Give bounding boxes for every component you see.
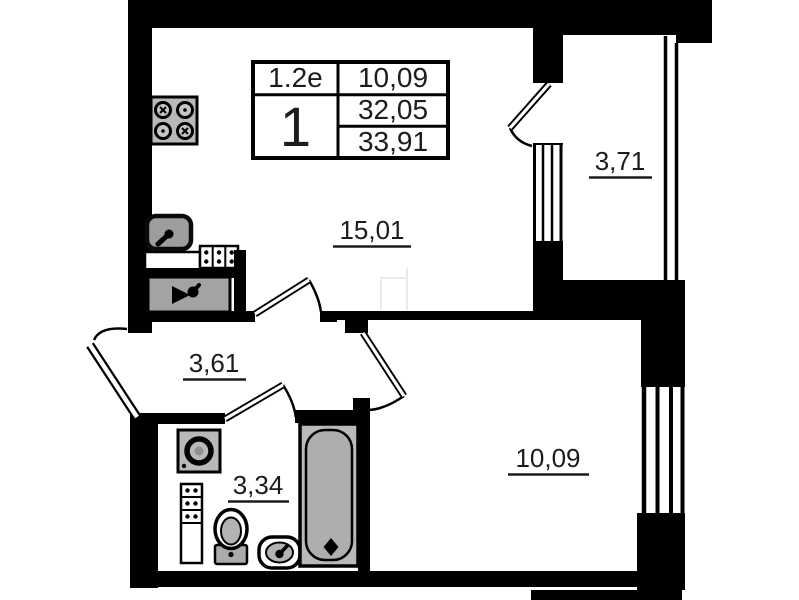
kitchen-balcony-window xyxy=(533,143,563,243)
bathroom-top-wall-step xyxy=(353,398,370,412)
washbasin-icon xyxy=(259,537,300,568)
balcony-door xyxy=(510,84,549,146)
kitchen-door xyxy=(255,280,321,314)
tap-unit-icon xyxy=(148,277,230,312)
bathroom-bedroom-wall xyxy=(358,410,370,573)
bathtub-icon xyxy=(300,424,358,566)
kitchen-sink-icon xyxy=(147,216,191,249)
stove-icon xyxy=(151,97,197,144)
wall-below-window xyxy=(533,243,563,320)
living-room-label: 15,01 xyxy=(333,215,411,247)
bedroom-area: 10,09 xyxy=(515,443,580,473)
bathroom-top-wall-right xyxy=(295,410,361,423)
balcony-door-arc xyxy=(510,128,532,146)
balcony-glazing xyxy=(666,36,677,282)
wall-top xyxy=(128,0,545,28)
entrance-door xyxy=(90,328,137,417)
floor-plan-page: 15,01 3,71 3,61 3,34 10,09 1.2e 1 10,09 … xyxy=(0,0,799,600)
bedroom-right-wall-lower xyxy=(637,513,685,590)
balcony-area: 3,71 xyxy=(595,146,646,176)
bedroom-window xyxy=(641,387,685,513)
kitchen-fixtures xyxy=(145,97,246,312)
bedroom-door-post xyxy=(345,311,368,333)
stamp-table: 1.2e 1 10,09 32,05 33,91 xyxy=(253,62,448,158)
bathroom-left-wall xyxy=(130,413,158,588)
bedroom-door-arc xyxy=(369,396,404,410)
bathroom-shelf-unit xyxy=(181,484,202,563)
hallway-label: 3,61 xyxy=(183,348,246,380)
toilet-icon xyxy=(215,510,247,565)
bathroom-door-arc xyxy=(283,385,296,418)
kitchen-door-arc xyxy=(309,280,321,312)
bathroom-label: 3,34 xyxy=(228,470,289,502)
hallway-area: 3,61 xyxy=(189,348,240,378)
wall-bottom xyxy=(130,571,641,587)
entrance-door-arc xyxy=(94,328,127,340)
floor-plan-drawing: 15,01 3,71 3,61 3,34 10,09 1.2e 1 10,09 … xyxy=(0,0,799,600)
wall-balcony-door-jamb xyxy=(533,28,563,83)
kitchen-wall-stub xyxy=(234,250,246,312)
scan-artifact xyxy=(381,268,407,310)
wall-mid-right xyxy=(320,311,643,320)
stamp-living-area: 10,09 xyxy=(358,62,428,93)
wall-balcony-corner-block xyxy=(676,0,712,43)
bedroom-right-wall-upper xyxy=(641,320,685,387)
kitchen-cabinet-dots xyxy=(200,246,238,268)
stamp-area-main: 32,05 xyxy=(358,94,428,125)
room-labels: 15,01 3,71 3,61 3,34 10,09 xyxy=(183,146,652,502)
wall-bottom-step xyxy=(531,590,682,600)
bedroom-label: 10,09 xyxy=(508,443,589,475)
living-room-area: 15,01 xyxy=(339,215,404,245)
bathroom-area: 3,34 xyxy=(233,470,284,500)
balcony-label: 3,71 xyxy=(589,146,652,178)
bathroom-top-wall-left xyxy=(158,413,225,424)
stamp-unit-code: 1.2e xyxy=(268,62,323,93)
bathroom-door xyxy=(225,385,296,419)
stamp-area-total: 33,91 xyxy=(358,126,428,157)
stamp-room-count: 1 xyxy=(280,95,311,158)
washing-machine-icon xyxy=(178,430,220,472)
